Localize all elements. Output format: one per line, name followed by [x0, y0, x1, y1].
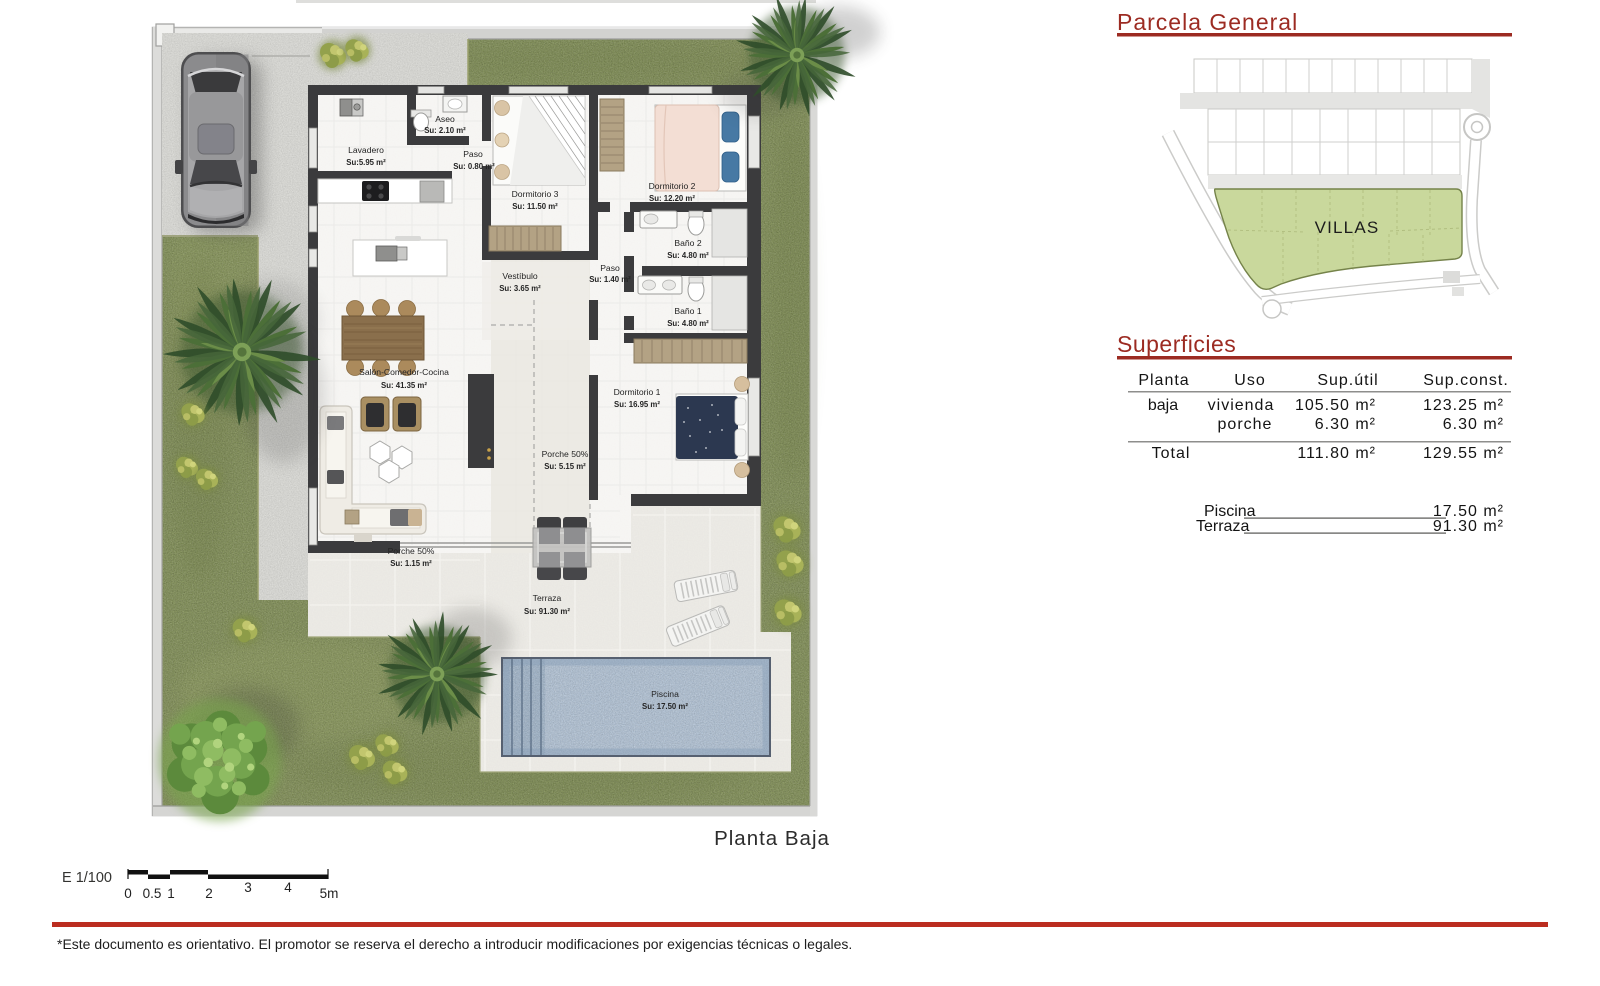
svg-text:Su: 12.20 m²: Su: 12.20 m²: [649, 194, 695, 203]
svg-text:Su: 91.30 m²: Su: 91.30 m²: [524, 607, 570, 616]
svg-text:6.30 m²: 6.30 m²: [1443, 416, 1504, 433]
svg-text:Paso: Paso: [600, 263, 620, 273]
svg-text:0: 0: [124, 886, 132, 901]
svg-text:91.30 m²: 91.30 m²: [1433, 518, 1504, 535]
svg-text:Total: Total: [1152, 445, 1191, 462]
svg-text:Uso: Uso: [1234, 372, 1265, 389]
svg-text:Su: 1.15 m²: Su: 1.15 m²: [390, 559, 432, 568]
svg-text:5m: 5m: [320, 886, 339, 901]
svg-text:129.55 m²: 129.55 m²: [1423, 445, 1504, 462]
svg-text:Paso: Paso: [463, 149, 483, 159]
svg-text:E 1/100: E 1/100: [62, 870, 112, 886]
svg-text:Dormitorio 1: Dormitorio 1: [614, 387, 661, 397]
svg-text:Dormitorio 3: Dormitorio 3: [512, 189, 559, 199]
svg-text:Su: 4.80 m²: Su: 4.80 m²: [667, 319, 709, 328]
svg-text:Terraza: Terraza: [533, 593, 562, 603]
svg-text:2: 2: [205, 886, 213, 901]
svg-text:3: 3: [244, 880, 252, 895]
svg-text:105.50 m²: 105.50 m²: [1295, 397, 1376, 414]
svg-text:Porche 50%: Porche 50%: [388, 546, 435, 556]
svg-text:baja: baja: [1148, 397, 1178, 414]
svg-text:Su: 17.50 m²: Su: 17.50 m²: [642, 702, 688, 711]
svg-text:Su: 3.65 m²: Su: 3.65 m²: [499, 284, 541, 293]
svg-text:Su: 16.95 m²: Su: 16.95 m²: [614, 400, 660, 409]
svg-text:Aseo: Aseo: [435, 114, 455, 124]
svg-text:123.25 m²: 123.25 m²: [1423, 397, 1504, 414]
svg-text:Su: 41.35 m²: Su: 41.35 m²: [381, 381, 427, 390]
svg-text:Su: 5.15 m²: Su: 5.15 m²: [544, 462, 586, 471]
svg-text:Salón-Comedor-Cocina: Salón-Comedor-Cocina: [359, 367, 449, 377]
svg-text:Vestíbulo: Vestíbulo: [502, 271, 538, 281]
svg-text:VILLAS: VILLAS: [1315, 218, 1380, 237]
svg-text:Piscina: Piscina: [651, 689, 679, 699]
svg-text:porche: porche: [1218, 416, 1273, 433]
svg-text:0.5: 0.5: [143, 886, 162, 901]
svg-text:Parcela General: Parcela General: [1117, 9, 1298, 35]
svg-text:Su:5.95 m²: Su:5.95 m²: [346, 158, 386, 167]
svg-text:Dormitorio 2: Dormitorio 2: [649, 181, 696, 191]
svg-text:Baño 1: Baño 1: [674, 306, 701, 316]
svg-text:Su: 1.40 m²: Su: 1.40 m²: [589, 275, 631, 284]
svg-text:Su: 0.80 m²: Su: 0.80 m²: [453, 162, 495, 171]
svg-text:Planta: Planta: [1138, 372, 1189, 389]
svg-text:Sup.útil: Sup.útil: [1317, 372, 1378, 389]
svg-text:Porche 50%: Porche 50%: [542, 449, 589, 459]
svg-text:4: 4: [284, 880, 292, 895]
svg-text:Su: 2.10 m²: Su: 2.10 m²: [424, 126, 466, 135]
svg-text:Baño 2: Baño 2: [674, 238, 701, 248]
svg-text:Planta Baja: Planta Baja: [714, 827, 830, 850]
svg-text:6.30 m²: 6.30 m²: [1315, 416, 1376, 433]
svg-text:Su: 11.50 m²: Su: 11.50 m²: [512, 202, 558, 211]
svg-text:vivienda: vivienda: [1208, 397, 1275, 414]
svg-text:Terraza: Terraza: [1196, 518, 1249, 535]
svg-text:Sup.const.: Sup.const.: [1423, 372, 1509, 389]
svg-text:Superficies: Superficies: [1117, 331, 1236, 357]
svg-text:111.80 m²: 111.80 m²: [1297, 445, 1376, 462]
svg-text:Su: 4.80 m²: Su: 4.80 m²: [667, 251, 709, 260]
svg-text:Lavadero: Lavadero: [348, 145, 384, 155]
svg-text:1: 1: [167, 886, 175, 901]
svg-text:*Este documento es orientativo: *Este documento es orientativo. El promo…: [57, 936, 852, 952]
